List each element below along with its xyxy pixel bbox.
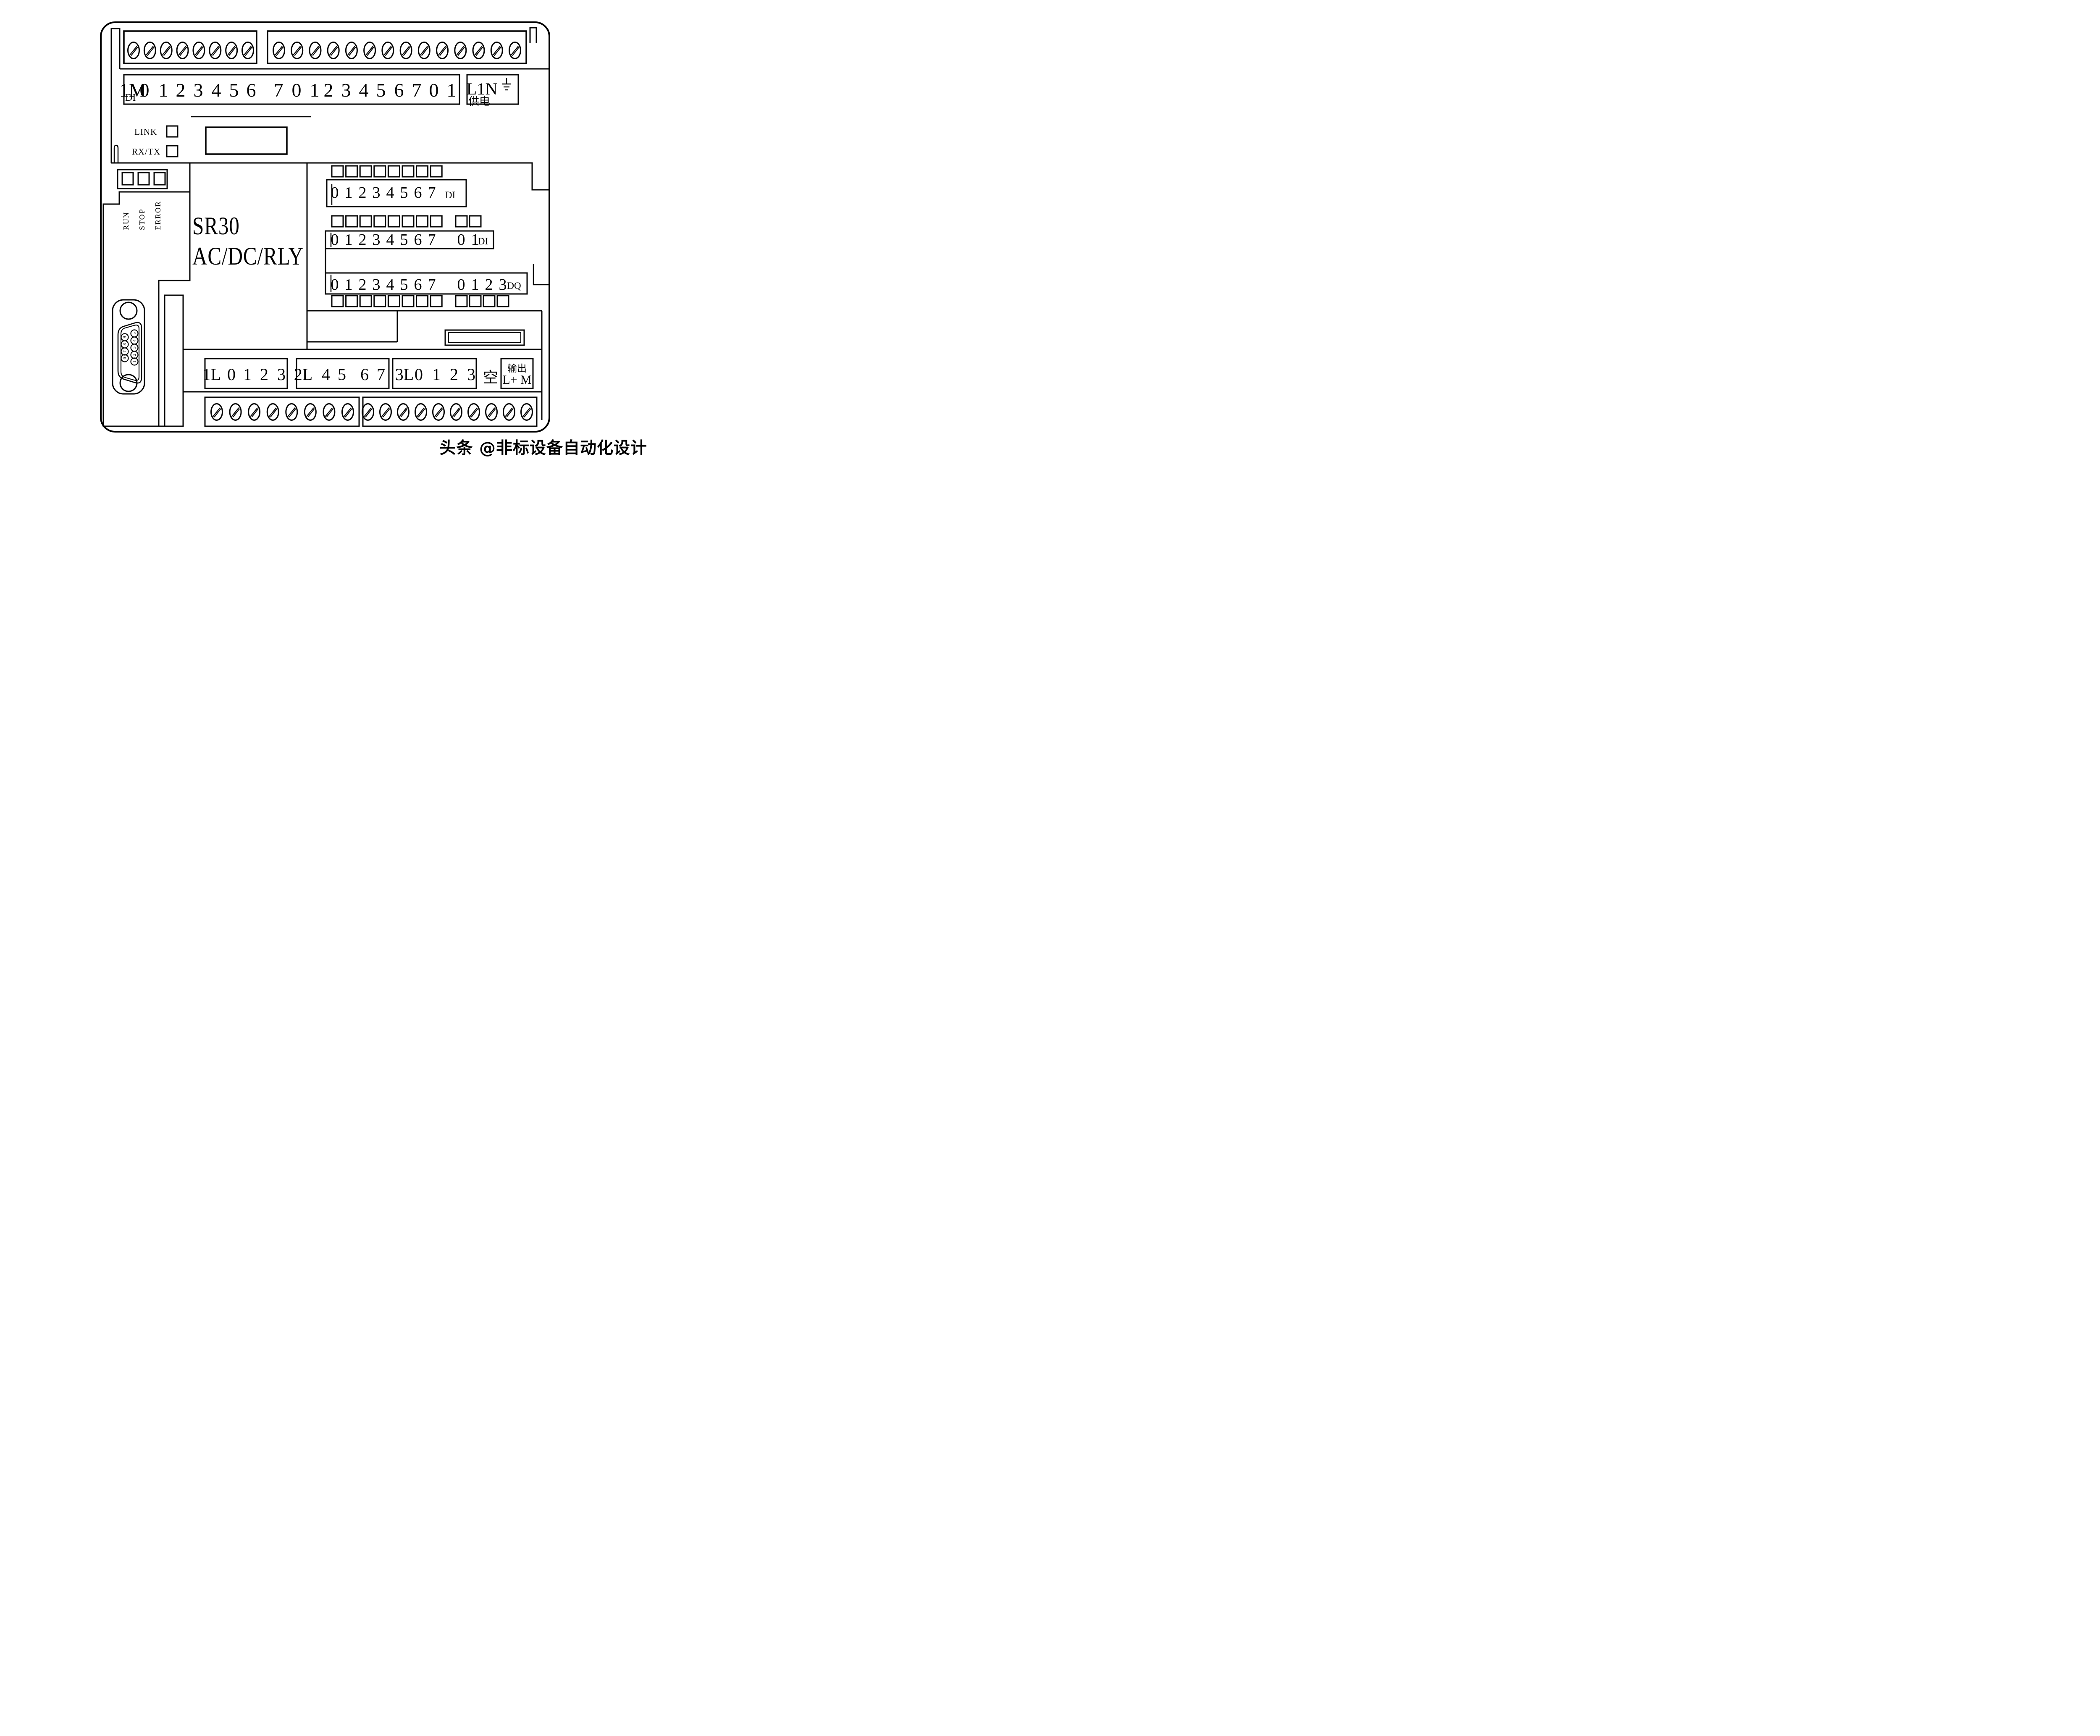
screw-terminal — [226, 42, 237, 59]
screw-terminal — [230, 404, 241, 420]
top-terminal-label: 0 — [429, 79, 439, 101]
status-led-windows — [122, 173, 165, 185]
screw-terminal — [415, 404, 427, 420]
io-channel-label: 6 — [414, 231, 422, 249]
top-terminal-label: 3 — [194, 79, 203, 101]
io-led — [430, 216, 442, 227]
output-channel-label: 6 — [360, 365, 369, 384]
screw-terminal — [249, 404, 260, 420]
io-led — [430, 166, 442, 177]
top-terminal-label: 4 — [359, 79, 369, 101]
screw-terminal — [504, 404, 515, 420]
io-led — [456, 296, 467, 307]
screw-terminal — [177, 42, 188, 59]
top-terminal-label: 5 — [376, 79, 386, 101]
io-channel-label: 0 — [331, 231, 339, 249]
rxtx-led-window — [167, 146, 178, 157]
io-row3-label-box — [325, 273, 527, 294]
io-led — [360, 296, 371, 307]
io-led — [402, 216, 414, 227]
plc-wiring-diagram: 123456789 DI 1M012345670123456701 L1 N 供… — [0, 0, 650, 459]
screw-terminal — [193, 42, 205, 59]
io-channel-label: 5 — [400, 184, 408, 202]
status-led-window — [154, 173, 165, 185]
io-channel-label: 7 — [428, 184, 436, 202]
top-terminal-label: 3 — [341, 79, 351, 101]
io-channel-label: 0 — [457, 231, 465, 249]
link-led-window — [167, 126, 178, 137]
io-channel-label: 3 — [373, 184, 381, 202]
io-channel-label: 4 — [386, 231, 394, 249]
screw-terminal — [455, 42, 466, 59]
ethernet-port — [206, 127, 287, 154]
io-channel-label: 3 — [499, 275, 507, 294]
screw-terminal — [468, 404, 480, 420]
model-label: SR30 — [192, 212, 240, 241]
output-channel-label: 1 — [243, 365, 252, 384]
io-led — [346, 216, 357, 227]
output-channel-label: 2 — [260, 365, 268, 384]
screw-terminal — [328, 42, 339, 59]
io-led — [388, 166, 399, 177]
io-led — [470, 216, 481, 227]
top-terminal-label: 0 — [292, 79, 302, 101]
io-row-tag: DQ — [507, 281, 521, 291]
io-led — [360, 216, 371, 227]
io-led — [388, 296, 399, 307]
io-channel-label: 2 — [359, 275, 367, 294]
power-caption: 供电 — [468, 93, 490, 108]
screw-terminal — [160, 42, 172, 59]
expansion-recess — [307, 311, 397, 342]
wiring-spec-label: AC/DC/RLY — [192, 242, 304, 271]
io-channel-label: 2 — [359, 231, 367, 249]
screw-terminal — [304, 404, 316, 420]
output-channel-label: 3 — [277, 365, 286, 384]
top-right-flange — [530, 28, 536, 43]
output-channel-label: 2 — [450, 365, 458, 384]
terminal-strip-top-right — [268, 31, 526, 63]
diagram-line-art: 123456789 — [0, 0, 650, 459]
top-terminal-label: 7 — [274, 79, 283, 101]
io-led — [388, 216, 399, 227]
db9-pin-number: 3 — [132, 346, 137, 349]
output-channel-label: 3 — [467, 365, 475, 384]
screw-terminal — [286, 404, 297, 420]
screw-terminal — [211, 404, 223, 420]
screw-terminal — [346, 42, 357, 59]
screw-terminal — [473, 42, 484, 59]
io-leds-row2 — [332, 216, 481, 227]
top-terminal-label: 7 — [412, 79, 422, 101]
top-terminal-label: 2 — [176, 79, 186, 101]
status-led-label: STOP — [138, 191, 147, 230]
screw-terminal — [291, 42, 303, 59]
screw-terminals-top-left — [128, 42, 254, 59]
screw-terminals-top-right — [273, 42, 521, 59]
output-channel-label: 1 — [432, 365, 441, 384]
db9-pin-number: 5 — [132, 332, 137, 335]
top-terminal-label: 2 — [324, 79, 333, 101]
io-led — [483, 296, 495, 307]
screw-terminal — [273, 42, 285, 59]
screw-terminal — [437, 42, 448, 59]
right-rim-notch — [533, 264, 549, 285]
io-led — [346, 166, 357, 177]
io-channel-label: 3 — [373, 231, 381, 249]
db9-pin-number: 9 — [122, 336, 127, 338]
io-channel-label: 2 — [485, 275, 493, 294]
watermark: 头条 @非标设备自动化设计 — [439, 435, 647, 459]
din-rail-channel — [165, 295, 183, 426]
earth-ground-icon — [502, 78, 511, 90]
io-led — [332, 296, 343, 307]
status-led-label: ERROR — [154, 191, 163, 230]
top-terminal-label: 1 — [159, 79, 168, 101]
io-led — [360, 166, 371, 177]
screw-terminal — [398, 404, 409, 420]
db9-pin-number: 6 — [122, 357, 127, 359]
db9-pin-field: 123456789 — [121, 330, 138, 365]
screw-terminal — [310, 42, 321, 59]
top-left-flange — [111, 29, 120, 163]
io-channel-label: 5 — [400, 275, 408, 294]
output-channel-label: 0 — [227, 365, 236, 384]
io-channel-label: 0 — [331, 184, 339, 202]
top-terminal-label: 1 — [310, 79, 320, 101]
top-terminal-label: 0 — [140, 79, 150, 101]
output-channel-label: 4 — [322, 365, 330, 384]
io-channel-label: 0 — [331, 275, 339, 294]
io-led — [497, 296, 509, 307]
output-box-pins: L+ M — [502, 373, 531, 387]
db9-pin-number: 4 — [132, 339, 137, 342]
top-terminal-label: 5 — [229, 79, 239, 101]
io-channel-label: 4 — [386, 184, 394, 202]
db9-pin-number: 8 — [122, 343, 127, 346]
rxtx-label: RX/TX — [132, 147, 160, 157]
screw-terminal — [380, 404, 391, 420]
output-channel-label: 5 — [338, 365, 346, 384]
top-terminal-label: 4 — [212, 79, 221, 101]
mount-hook — [114, 145, 118, 163]
io-channel-label: 7 — [428, 231, 436, 249]
screw-terminal — [382, 42, 394, 59]
screw-terminal — [400, 42, 412, 59]
screw-terminal — [509, 42, 520, 59]
output-group-label: 1L — [202, 365, 221, 384]
db9-connector: 123456789 — [113, 300, 144, 394]
db9-pin-number: 2 — [132, 354, 137, 356]
screw-terminal — [342, 404, 353, 420]
io-led — [374, 166, 386, 177]
screw-terminal — [362, 404, 374, 420]
db9-pin-number: 7 — [122, 350, 127, 353]
io-led — [332, 166, 343, 177]
upper-divider — [111, 163, 549, 190]
screw-terminal — [364, 42, 375, 59]
screw-terminal — [242, 42, 254, 59]
io-leds-row1 — [332, 166, 442, 177]
screw-terminal — [144, 42, 155, 59]
io-channel-label: 5 — [400, 231, 408, 249]
io-leds-row3 — [332, 296, 509, 307]
screw-terminals-bottom-left — [211, 404, 354, 420]
io-channel-label: 2 — [359, 184, 367, 202]
screw-terminal — [210, 42, 221, 59]
io-led — [402, 296, 414, 307]
top-terminal-label: 6 — [247, 79, 256, 101]
io-channel-label: 4 — [386, 275, 394, 294]
db9-screw-hole-top — [120, 302, 137, 319]
spare-label: 空 — [483, 365, 498, 387]
io-row-tag: DI — [478, 236, 488, 247]
io-led — [402, 166, 414, 177]
status-led-window — [138, 173, 149, 185]
output-box-title: 输出 — [507, 360, 527, 375]
io-led — [374, 216, 386, 227]
io-led — [417, 166, 428, 177]
io-led — [430, 296, 442, 307]
io-channel-label: 1 — [471, 275, 479, 294]
screw-terminal — [418, 42, 430, 59]
top-terminal-label: 1 — [447, 79, 457, 101]
screw-terminals-bottom-right — [362, 404, 533, 420]
io-led — [417, 296, 428, 307]
io-channel-label: 1 — [345, 184, 353, 202]
screw-terminal — [323, 404, 335, 420]
expansion-slot-inner — [449, 333, 521, 343]
io-channel-label: 6 — [414, 184, 422, 202]
io-led — [374, 296, 386, 307]
screw-terminal — [128, 42, 139, 59]
output-group-label: 2L — [294, 365, 312, 384]
status-led-label: RUN — [122, 191, 131, 230]
screw-terminal — [491, 42, 502, 59]
io-channel-label: 6 — [414, 275, 422, 294]
screw-terminal — [267, 404, 278, 420]
screw-terminal — [451, 404, 462, 420]
io-channel-label: 1 — [345, 275, 353, 294]
screw-terminal — [433, 404, 444, 420]
link-label: LINK — [134, 127, 157, 137]
io-led — [456, 216, 467, 227]
status-led-window — [122, 173, 133, 185]
io-led — [417, 216, 428, 227]
io-channel-label: 0 — [457, 275, 465, 294]
output-group-label: 3L — [395, 365, 414, 384]
io-channel-label: 3 — [373, 275, 381, 294]
terminal-strip-bottom-left — [205, 397, 359, 426]
io-led — [346, 296, 357, 307]
io-channel-label: 1 — [345, 231, 353, 249]
io-led — [470, 296, 481, 307]
db9-pin-number: 1 — [132, 360, 137, 363]
io-channel-label: 7 — [428, 275, 436, 294]
screw-terminal — [521, 404, 533, 420]
output-channel-label: 0 — [415, 365, 423, 384]
top-terminal-label: 6 — [394, 79, 404, 101]
output-channel-label: 7 — [377, 365, 385, 384]
io-row-tag: DI — [445, 190, 455, 201]
io-led — [332, 216, 343, 227]
screw-terminal — [486, 404, 497, 420]
